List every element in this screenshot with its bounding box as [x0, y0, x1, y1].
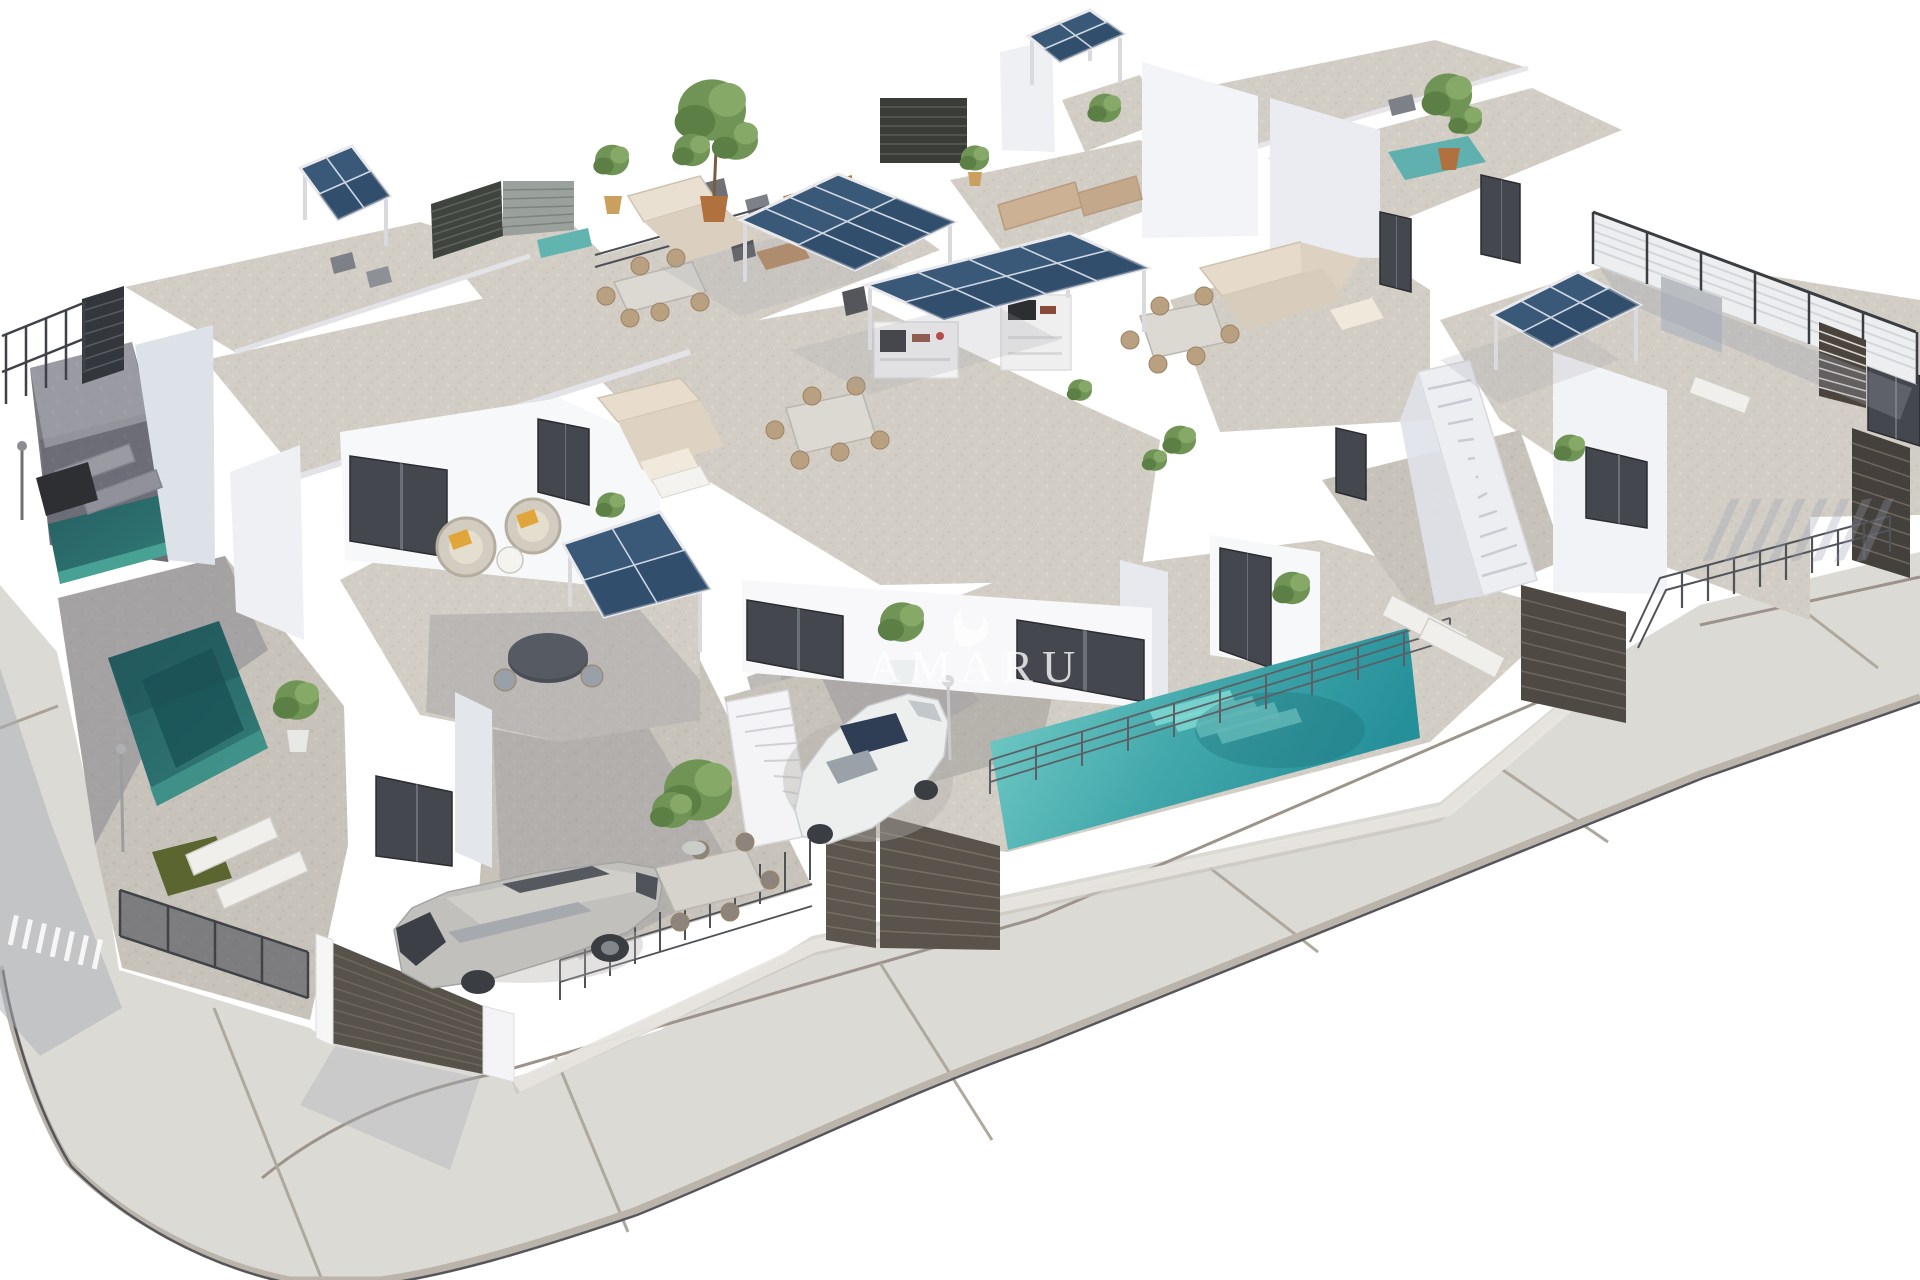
svg-text:AMARU: AMARU: [868, 641, 1084, 692]
